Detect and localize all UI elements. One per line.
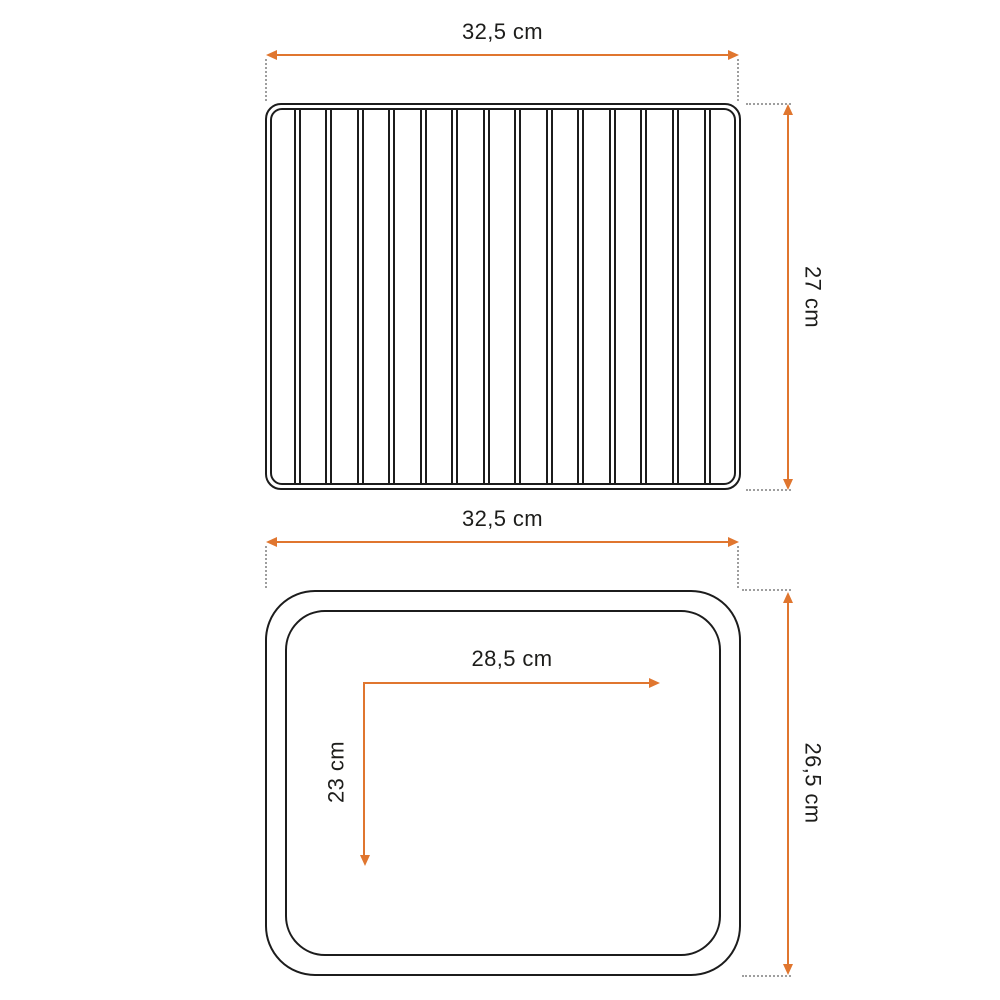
- tray-height-label: 26,5 cm: [800, 742, 825, 823]
- arrowhead-down-icon: [783, 964, 793, 975]
- arrowhead-up-icon: [783, 104, 793, 115]
- arrowhead-left-icon: [266, 50, 277, 60]
- dimension-diagram-canvas: 32,5 cm 27 cm 32,5 cm 28,5 cm: [0, 0, 1000, 1000]
- dimension-line: [274, 541, 731, 543]
- rack-bar: [546, 109, 553, 484]
- rack-height-dimension-line: [780, 104, 796, 490]
- arrowhead-left-icon: [266, 537, 277, 547]
- tray-inner-width-label: 28,5 cm: [364, 646, 660, 671]
- rack-bar: [640, 109, 647, 484]
- dimension-line: [364, 682, 652, 684]
- extension-line-tray-top-right: [737, 546, 739, 588]
- dimension-line: [363, 682, 365, 858]
- rack-bar: [483, 109, 490, 484]
- extension-line-tray-top-left: [265, 546, 267, 588]
- rack-bar: [672, 109, 679, 484]
- rack-bar: [357, 109, 364, 484]
- dimension-line: [787, 112, 789, 482]
- extension-line-tray-right-top: [742, 589, 791, 591]
- arrowhead-down-icon: [783, 479, 793, 490]
- tray-inner-height-label: 23 cm: [323, 741, 348, 803]
- rack-bar: [514, 109, 521, 484]
- dimension-line: [787, 600, 789, 967]
- tray-width-dimension-line: [266, 534, 739, 550]
- extension-line-tray-right-bottom: [742, 975, 791, 977]
- rack-bar: [451, 109, 458, 484]
- rack-bar: [577, 109, 584, 484]
- rack-bar: [294, 109, 301, 484]
- rack-bar: [325, 109, 332, 484]
- rack-bar: [420, 109, 427, 484]
- rack-height-label: 27 cm: [800, 266, 825, 328]
- arrowhead-down-icon: [360, 855, 370, 866]
- extension-line-rack-top-left: [265, 59, 267, 101]
- tray-width-label: 32,5 cm: [266, 506, 739, 531]
- tray-inner-width-dimension-line: [364, 675, 660, 691]
- rack-width-dimension-line: [266, 47, 739, 63]
- rack-bars: [267, 105, 739, 488]
- rack-bar: [704, 109, 711, 484]
- arrowhead-right-icon: [649, 678, 660, 688]
- tray-inner-height-dimension-line: [357, 682, 373, 866]
- wire-rack-outline: [265, 103, 741, 490]
- rack-bar: [388, 109, 395, 484]
- arrowhead-up-icon: [783, 592, 793, 603]
- tray-height-dimension-line: [780, 592, 796, 975]
- extension-line-rack-top-right: [737, 59, 739, 101]
- rack-bar: [609, 109, 616, 484]
- rack-width-label: 32,5 cm: [266, 19, 739, 44]
- dimension-line: [274, 54, 731, 56]
